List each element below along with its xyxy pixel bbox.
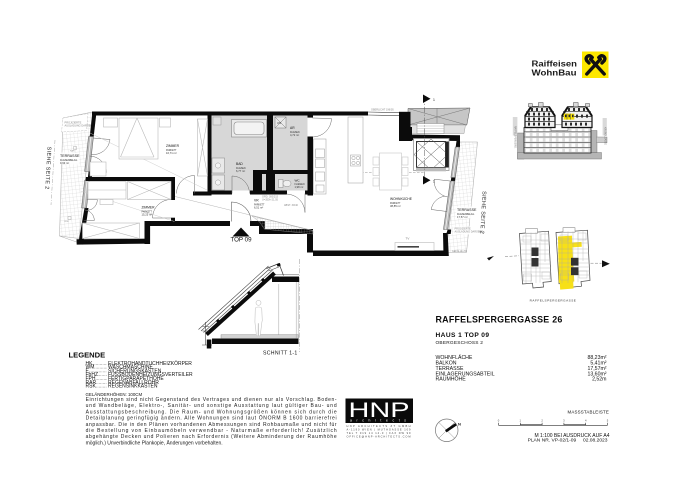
svg-text:0: 0	[498, 418, 500, 422]
svg-text:HAUS 1 TOP 09: HAUS 1 TOP 09	[436, 332, 490, 339]
svg-text:WM: WM	[277, 122, 281, 125]
svg-text:1: 1	[433, 180, 435, 184]
svg-text:RAUMHÖHE: RAUMHÖHE	[436, 376, 467, 383]
svg-text:anpassbar. Die in den Plänen v: anpassbar. Die in den Plänen vorhandenen…	[86, 422, 337, 428]
svg-text:OBERGESCHOSS 2: OBERGESCHOSS 2	[436, 340, 484, 346]
svg-text:TEL T 019 14 14-0 | FAX DW 99: TEL T 019 14 14-0 | FAX DW 99	[347, 431, 412, 435]
svg-text:TERRASSE: TERRASSE	[457, 208, 477, 212]
svg-text:RAR: RAR	[70, 150, 75, 153]
svg-text:1,98 m²: 1,98 m²	[295, 185, 304, 189]
svg-text:1: 1	[433, 98, 435, 102]
svg-text:5: 5	[607, 418, 609, 422]
svg-text:TV: TV	[406, 237, 410, 241]
svg-text:6,77 m²: 6,77 m²	[236, 169, 245, 173]
svg-text:HNP ARCHITECTS ZT GMBH: HNP ARCHITECTS ZT GMBH	[347, 424, 411, 428]
svg-text:RAFFELSPERGERG.: RAFFELSPERGERG.	[514, 126, 517, 149]
svg-text:A-1190 WIEN | MUTHGASSE 109: A-1190 WIEN | MUTHGASSE 109	[347, 427, 412, 431]
svg-text:TOP 09: TOP 09	[230, 237, 252, 244]
svg-text:ZIMMER: ZIMMER	[142, 206, 156, 210]
svg-text:MASSSTABLEISTE: MASSSTABLEISTE	[567, 410, 609, 415]
svg-text:4,72 m²: 4,72 m²	[290, 133, 299, 137]
svg-text:16,71 m²: 16,71 m²	[166, 151, 177, 155]
svg-text:REGENSINKKASTEN: REGENSINKKASTEN	[108, 384, 158, 390]
svg-text:ZIMMER: ZIMMER	[166, 144, 180, 148]
svg-text:Raiffeisen: Raiffeisen	[532, 60, 578, 69]
svg-text:BAD: BAD	[236, 162, 243, 166]
svg-text:möglich.) Unverbindliche Plank: möglich.) Unverbindliche Plankopie, Ände…	[86, 439, 223, 446]
svg-text:9,93 m²: 9,93 m²	[60, 161, 69, 165]
svg-text:RAFFELSPERGERGASSE 26: RAFFELSPERGERGASSE 26	[436, 315, 563, 325]
svg-text:1: 1	[520, 418, 522, 422]
svg-text:SIEHE SEITE 2: SIEHE SEITE 2	[43, 146, 51, 189]
svg-text:WOHNKÜCHE: WOHNKÜCHE	[390, 197, 413, 201]
svg-text:3: 3	[563, 418, 565, 422]
svg-text:2,52m: 2,52m	[592, 377, 606, 383]
svg-text:ABST. 30/40: ABST. 30/40	[284, 204, 299, 207]
svg-text:17,57 m²: 17,57 m²	[457, 215, 468, 219]
svg-text:SCHNITT 1-1: SCHNITT 1-1	[263, 351, 298, 357]
svg-text:SIEHE SEITE 2: SIEHE SEITE 2	[478, 191, 486, 234]
svg-text:6,51 m²: 6,51 m²	[254, 206, 263, 210]
svg-text:RSK: RSK	[65, 221, 70, 223]
svg-text:4: 4	[585, 418, 587, 422]
svg-text:Detailplanung geringfügig ände: Detailplanung geringfügig ändern. Alle W…	[86, 415, 337, 422]
svg-text:N: N	[458, 421, 461, 426]
svg-text:RSK: RSK	[86, 384, 97, 390]
svg-text:15,25 m²: 15,25 m²	[142, 213, 153, 217]
svg-text:und Wandbeläge, Elektro-, Sani: und Wandbeläge, Elektro-, Sanitär- und s…	[86, 403, 337, 409]
svg-text:RAFFELSPERGERGASSE: RAFFELSPERGERGASSE	[530, 299, 577, 303]
svg-text:LEGENDE: LEGENDE	[69, 351, 106, 360]
svg-text:abgehängte Decken und Polieren: abgehängte Decken und Polieren nach Erfo…	[86, 434, 337, 440]
svg-text:PLAN NR. VP-02/1-09 02.08.: PLAN NR. VP-02/1-09 02.08.2023	[528, 438, 608, 444]
svg-text:Einrichtungen sind nicht Gegen: Einrichtungen sind nicht Gegenstand des …	[86, 397, 337, 403]
svg-text:WohnBau: WohnBau	[532, 68, 577, 77]
svg-text:die Bestellung von Einbaumöbel: die Bestellung von Einbaumöbeln verwendb…	[86, 428, 337, 434]
svg-text:WC: WC	[295, 179, 301, 183]
svg-text:OFFICE@HNP-ARCHITECTS.COM: OFFICE@HNP-ARCHITECTS.COM	[347, 434, 411, 438]
svg-text:Ausstattungsbeschreibung. Die: Ausstattungsbeschreibung. Die Raum- und …	[86, 409, 337, 415]
svg-text:2: 2	[541, 418, 543, 422]
svg-text:OBERLICHT 196/05: OBERLICHT 196/05	[371, 109, 394, 112]
svg-text:KREINDLGASSE: KREINDLGASSE	[604, 127, 607, 145]
svg-text:TERRASSE: TERRASSE	[60, 154, 80, 158]
svg-text:AR: AR	[290, 126, 295, 130]
svg-text:AUSLADUNG DARÜBER: AUSLADUNG DARÜBER	[65, 124, 95, 128]
svg-text:38,85 m²: 38,85 m²	[390, 204, 401, 208]
svg-text:VR: VR	[254, 199, 259, 203]
svg-text:GEFÄLLE 2%: GEFÄLLE 2%	[452, 250, 468, 253]
svg-text:U=350/+21,05: U=350/+21,05	[262, 199, 278, 202]
